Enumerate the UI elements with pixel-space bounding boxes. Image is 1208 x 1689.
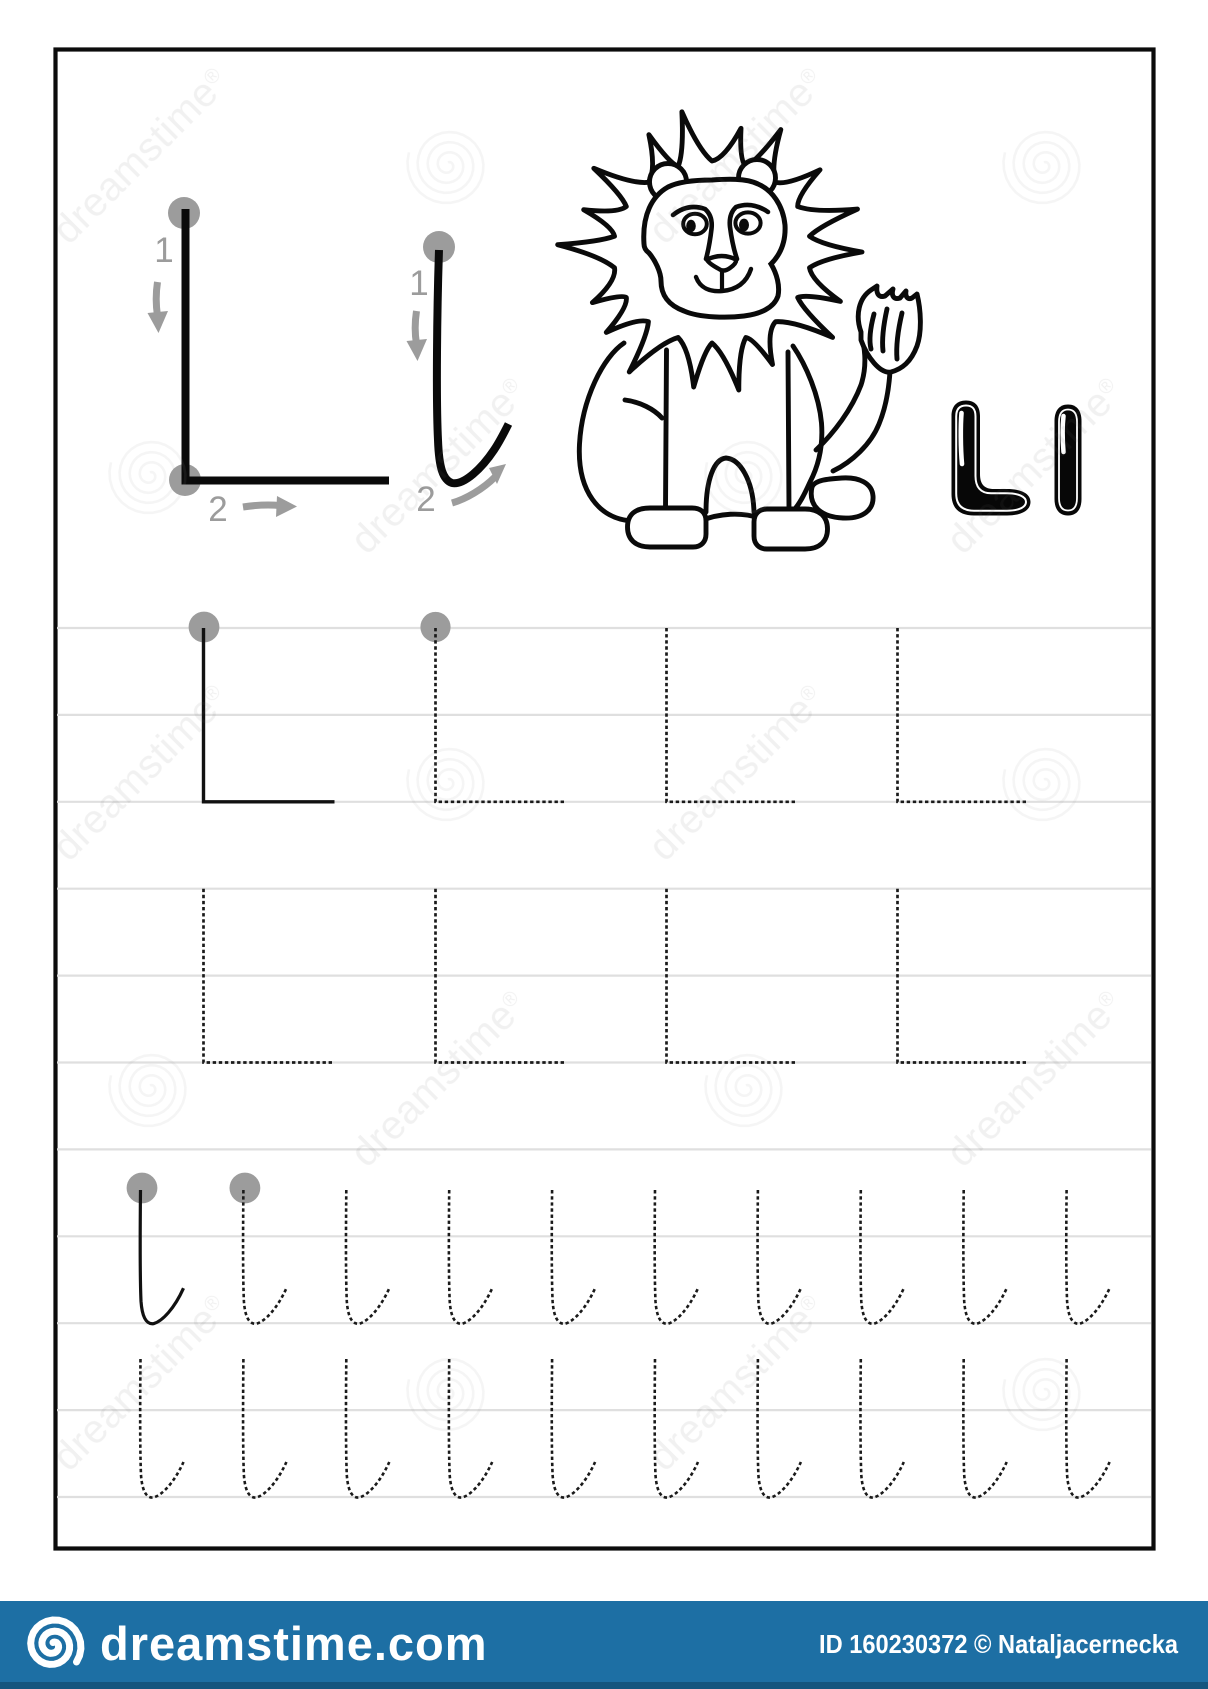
svg-text:1: 1	[154, 231, 173, 270]
svg-text:dreamstime.com: dreamstime.com	[100, 1617, 488, 1670]
svg-text:ID 160230372 © Nataljacernecka: ID 160230372 © Nataljacernecka	[819, 1629, 1178, 1659]
svg-text:1: 1	[409, 264, 428, 303]
svg-text:2: 2	[208, 490, 227, 529]
